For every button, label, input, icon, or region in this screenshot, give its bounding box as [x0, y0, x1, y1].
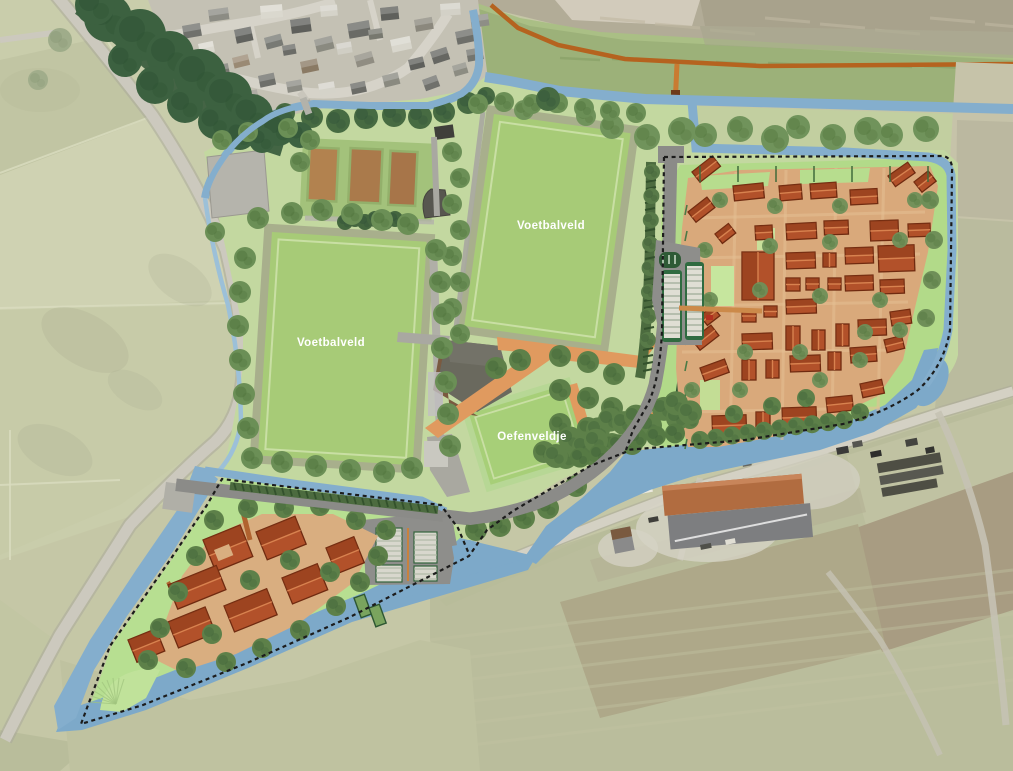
svg-text:Voetbalveld: Voetbalveld — [297, 337, 365, 349]
svg-text:Oefenveldje: Oefenveldje — [497, 431, 567, 443]
svg-text:Voetbalveld: Voetbalveld — [517, 220, 585, 232]
